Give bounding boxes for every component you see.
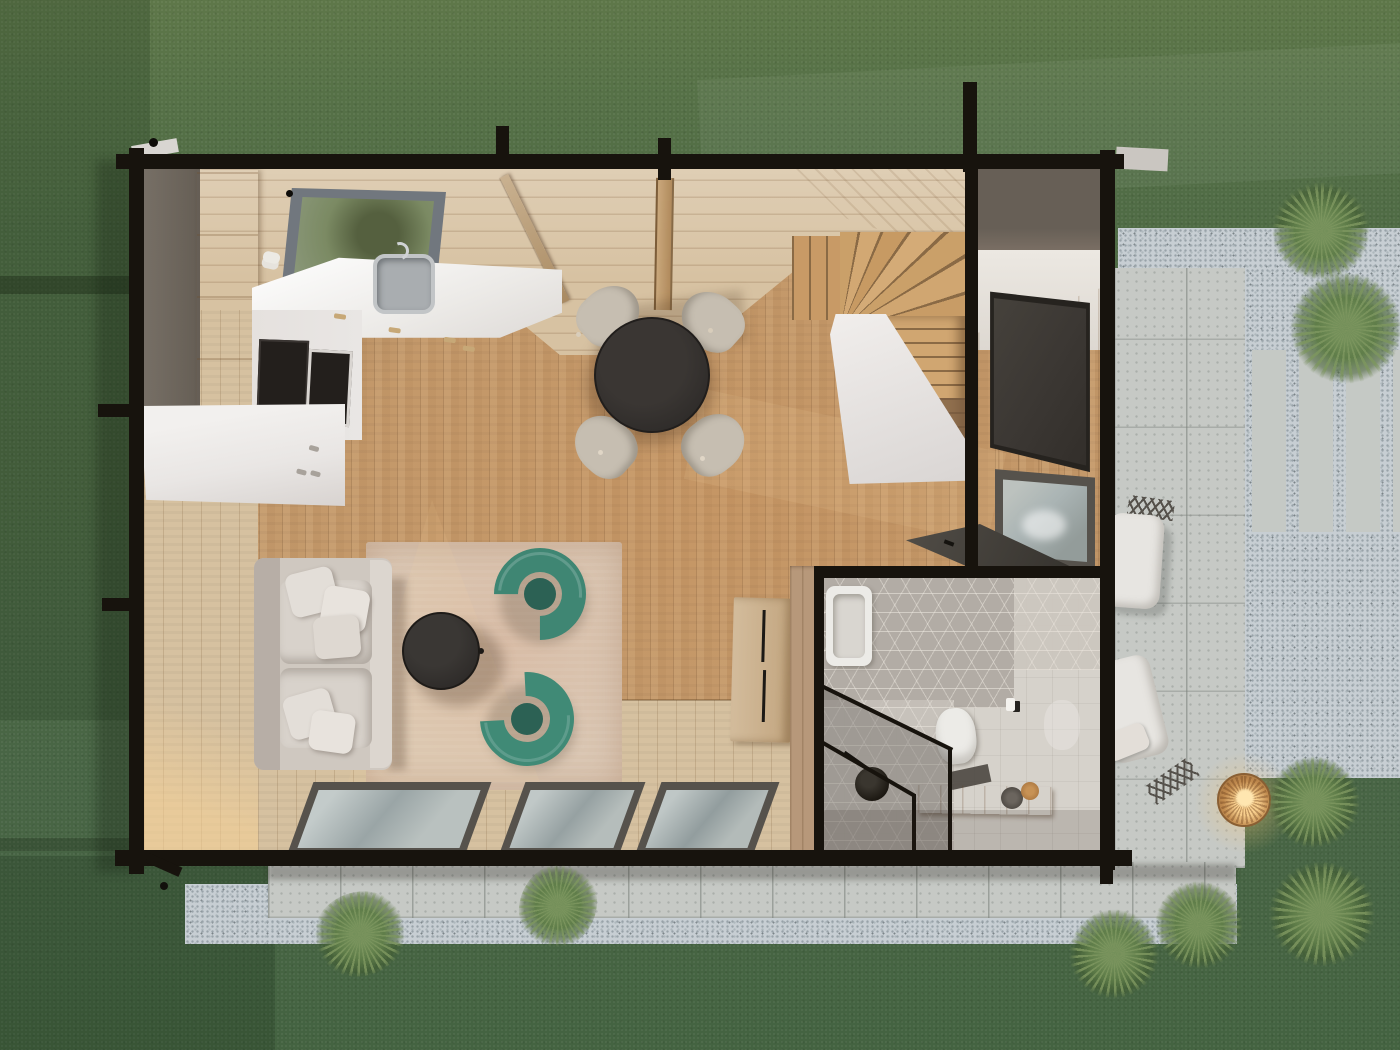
south-window-glass (297, 790, 480, 848)
floor-plan-render (0, 0, 1400, 1050)
beam-stub (963, 82, 977, 172)
bathroom-frame-left (814, 566, 824, 862)
wall-beam-west (129, 148, 144, 874)
coffee-table-handle (478, 648, 484, 654)
kitchen-tall-cabinets (197, 170, 258, 422)
ornamental-grass (1272, 182, 1370, 280)
roof-remnant-right (969, 168, 1106, 254)
corner-dot (149, 138, 158, 147)
ceiling-beam (654, 178, 674, 310)
roof-remnant-left (144, 168, 200, 412)
sofa-backrest (254, 558, 280, 770)
bathtub-basin (833, 594, 865, 658)
toilet-paper-holder (1006, 698, 1015, 711)
sofa-pillow (307, 709, 356, 755)
dining-table (594, 317, 710, 433)
interior-wall-beam (965, 168, 978, 578)
kitchen-island (140, 404, 345, 506)
bathroom-frame-top (814, 566, 1106, 578)
sun-patch-west (144, 690, 258, 858)
beam-stub (496, 126, 509, 160)
bathroom-hex-wall-light (1014, 578, 1104, 670)
coffee-table (402, 612, 480, 690)
beam-stub-west (98, 404, 132, 417)
wall-beam-east (1100, 150, 1115, 870)
rolled-towel-tan (1021, 782, 1039, 800)
sofa-pillow (312, 614, 361, 660)
beam-stub-west (102, 598, 132, 611)
kitchen-sink (373, 254, 435, 314)
corner-dot-bottom (160, 882, 168, 890)
window-reflection (1022, 510, 1066, 540)
wall-beam-south (115, 850, 1132, 866)
skylight-corner-dot (286, 190, 293, 197)
tv-screen (992, 291, 1088, 469)
stairs-upper-flight (792, 236, 840, 320)
beam-stub (658, 138, 671, 180)
cooktop (257, 339, 309, 409)
walkway-shadow (268, 864, 1236, 880)
beam-stub-corner (1100, 864, 1113, 884)
sofa-front-edge (370, 560, 392, 768)
toilet-reflection (1044, 700, 1080, 750)
chair-leg-dots (598, 450, 603, 455)
south-window-glass (645, 790, 768, 848)
lantern-flame (1236, 789, 1254, 807)
south-window-glass (509, 790, 634, 848)
rolled-towel-dark (1001, 787, 1023, 809)
